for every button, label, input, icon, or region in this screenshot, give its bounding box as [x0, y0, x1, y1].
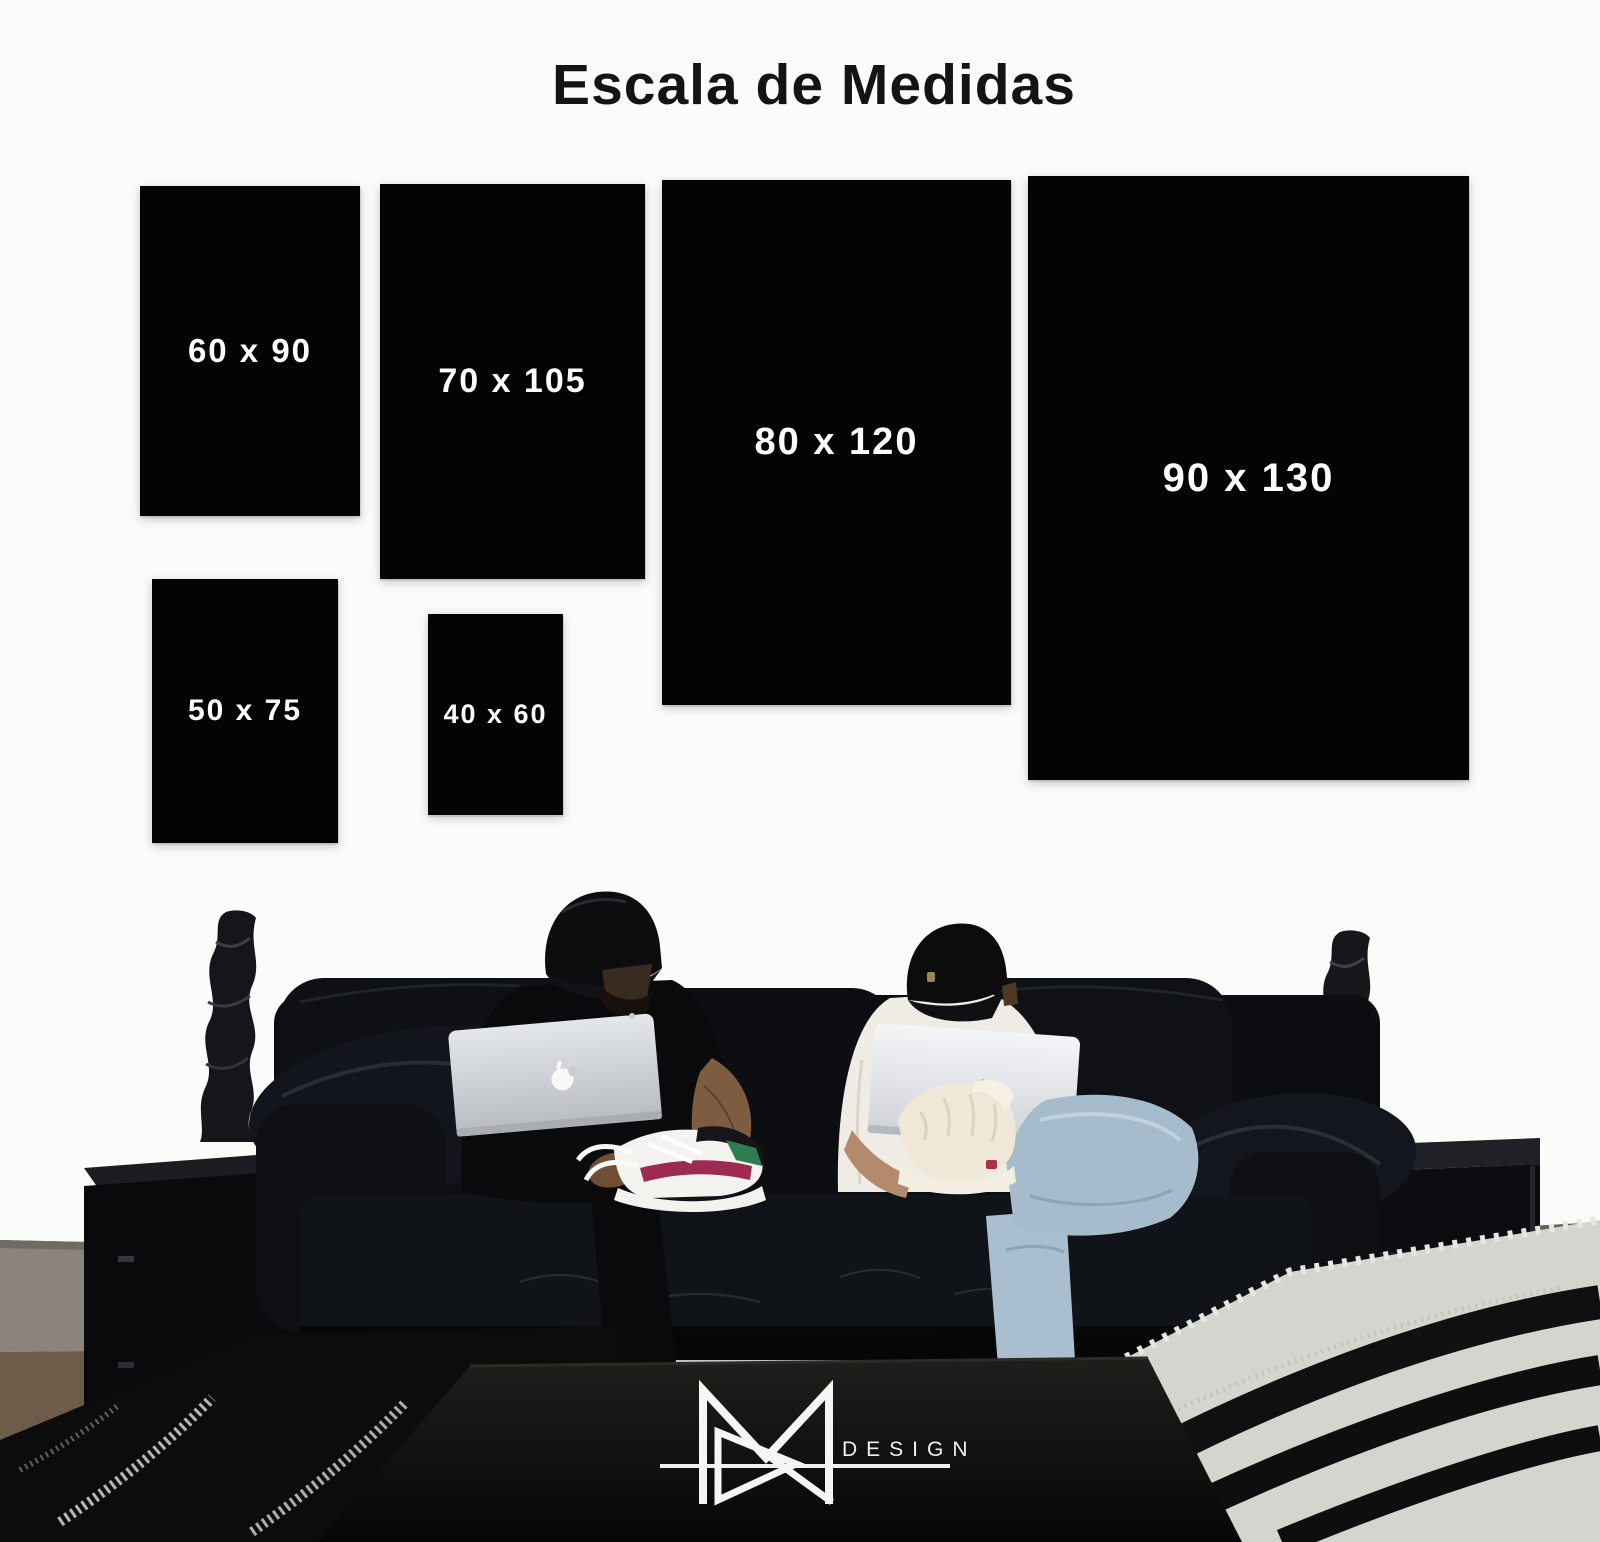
size-label: 80 x 120: [755, 421, 919, 464]
size-label: 40 x 60: [443, 699, 547, 730]
size-label: 50 x 75: [188, 694, 302, 728]
jeans-crossed-leg: [1006, 1095, 1198, 1236]
brand-wordmark: DESIGN: [842, 1438, 977, 1461]
macbook-left: [448, 1013, 662, 1137]
coffee-table: [318, 1358, 1242, 1542]
size-panel-40x60: 40 x 60: [428, 614, 563, 815]
size-panel-80x120: 80 x 120: [662, 180, 1011, 705]
neck-right-man: [1002, 982, 1018, 1006]
necklace: [629, 1013, 635, 1019]
size-panel-60x90: 60 x 90: [140, 186, 360, 516]
size-label: 90 x 130: [1163, 456, 1335, 501]
size-label: 60 x 90: [188, 332, 312, 370]
size-panel-50x75: 50 x 75: [152, 579, 338, 843]
sneaker-tag: [986, 1160, 997, 1169]
size-guide-image: DESIGN Escala de Medidas 60 x 90 70 x 10…: [0, 0, 1600, 1542]
size-panel-90x130: 90 x 130: [1028, 176, 1469, 780]
size-panel-70x105: 70 x 105: [380, 184, 645, 579]
size-label: 70 x 105: [438, 362, 586, 401]
page-title: Escala de Medidas: [0, 52, 1600, 118]
cap-badge: [927, 972, 935, 982]
